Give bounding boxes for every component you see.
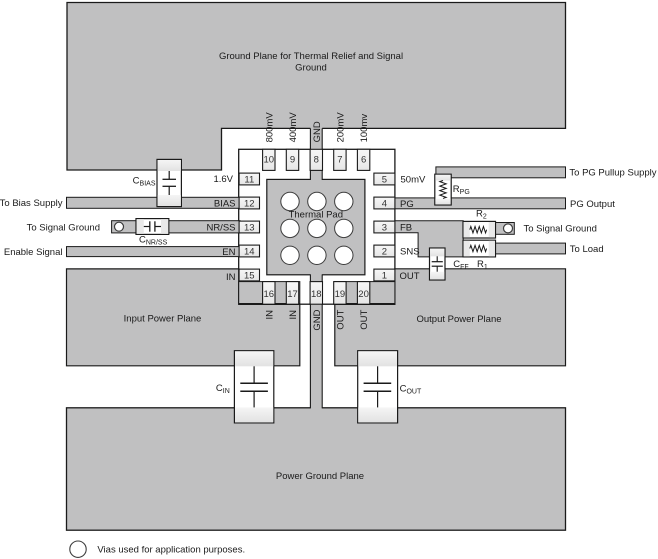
svg-text:R1: R1 — [477, 259, 488, 271]
svg-text:2: 2 — [382, 246, 387, 257]
svg-text:20: 20 — [358, 289, 369, 300]
svg-text:To PG Pullup Supply: To PG Pullup Supply — [569, 168, 656, 179]
svg-text:Enable Signal: Enable Signal — [4, 247, 63, 258]
svg-text:IN: IN — [264, 310, 275, 320]
svg-text:CBIAS: CBIAS — [133, 175, 156, 187]
svg-text:RPG: RPG — [453, 184, 470, 196]
svg-text:400mV: 400mV — [288, 112, 299, 143]
svg-text:Power Ground Plane: Power Ground Plane — [276, 471, 364, 482]
svg-text:3: 3 — [382, 222, 387, 233]
svg-text:COUT: COUT — [400, 384, 422, 396]
svg-text:BIAS: BIAS — [214, 198, 236, 209]
svg-text:Vias used for application purp: Vias used for application purposes. — [97, 545, 245, 556]
svg-text:8: 8 — [314, 155, 319, 166]
svg-text:Thermal Pad: Thermal Pad — [289, 209, 343, 220]
svg-text:200mV: 200mV — [336, 112, 347, 143]
svg-text:6: 6 — [361, 155, 366, 166]
svg-text:NR/SS: NR/SS — [206, 223, 235, 234]
svg-text:Ground: Ground — [295, 63, 327, 74]
svg-text:5: 5 — [382, 174, 387, 185]
svg-text:800mV: 800mV — [264, 112, 275, 143]
svg-text:PG Output: PG Output — [570, 199, 615, 210]
svg-text:CNR/SS: CNR/SS — [139, 235, 168, 247]
svg-text:FB: FB — [400, 223, 412, 234]
svg-text:GND: GND — [312, 121, 323, 142]
svg-text:OUT: OUT — [400, 271, 420, 282]
svg-text:9: 9 — [290, 155, 295, 166]
svg-text:EN: EN — [222, 247, 235, 258]
svg-text:R2: R2 — [476, 209, 487, 221]
svg-text:To Load: To Load — [570, 244, 604, 255]
svg-text:18: 18 — [311, 289, 322, 300]
svg-text:To Signal Ground: To Signal Ground — [524, 223, 597, 234]
svg-text:1.6V: 1.6V — [213, 174, 233, 185]
svg-text:4: 4 — [382, 198, 387, 209]
svg-text:CFF: CFF — [453, 259, 468, 271]
svg-text:OUT: OUT — [359, 309, 370, 329]
svg-text:14: 14 — [244, 246, 255, 257]
svg-text:11: 11 — [244, 174, 254, 185]
svg-text:15: 15 — [244, 270, 255, 281]
svg-text:16: 16 — [264, 289, 275, 300]
svg-text:1: 1 — [382, 270, 387, 281]
svg-text:17: 17 — [287, 289, 298, 300]
svg-text:To Signal Ground: To Signal Ground — [27, 222, 100, 233]
svg-text:IN: IN — [288, 310, 299, 320]
svg-text:GND: GND — [312, 309, 323, 330]
svg-text:13: 13 — [244, 222, 255, 233]
svg-text:SNS: SNS — [400, 247, 420, 258]
svg-text:Input Power Plane: Input Power Plane — [124, 313, 202, 324]
svg-text:IN: IN — [226, 272, 236, 283]
svg-text:100mv: 100mv — [359, 114, 370, 143]
svg-text:12: 12 — [244, 198, 255, 209]
svg-text:CIN: CIN — [216, 383, 230, 395]
svg-text:Ground Plane for Thermal Relie: Ground Plane for Thermal Relief and Sign… — [219, 51, 403, 62]
svg-text:To Bias Supply: To Bias Supply — [0, 198, 63, 209]
svg-text:10: 10 — [264, 155, 275, 166]
svg-text:19: 19 — [335, 289, 346, 300]
svg-text:Output Power Plane: Output Power Plane — [416, 314, 501, 325]
svg-text:OUT: OUT — [336, 309, 347, 329]
svg-text:PG: PG — [400, 199, 414, 210]
svg-text:7: 7 — [337, 155, 342, 166]
svg-text:50mV: 50mV — [401, 174, 426, 185]
